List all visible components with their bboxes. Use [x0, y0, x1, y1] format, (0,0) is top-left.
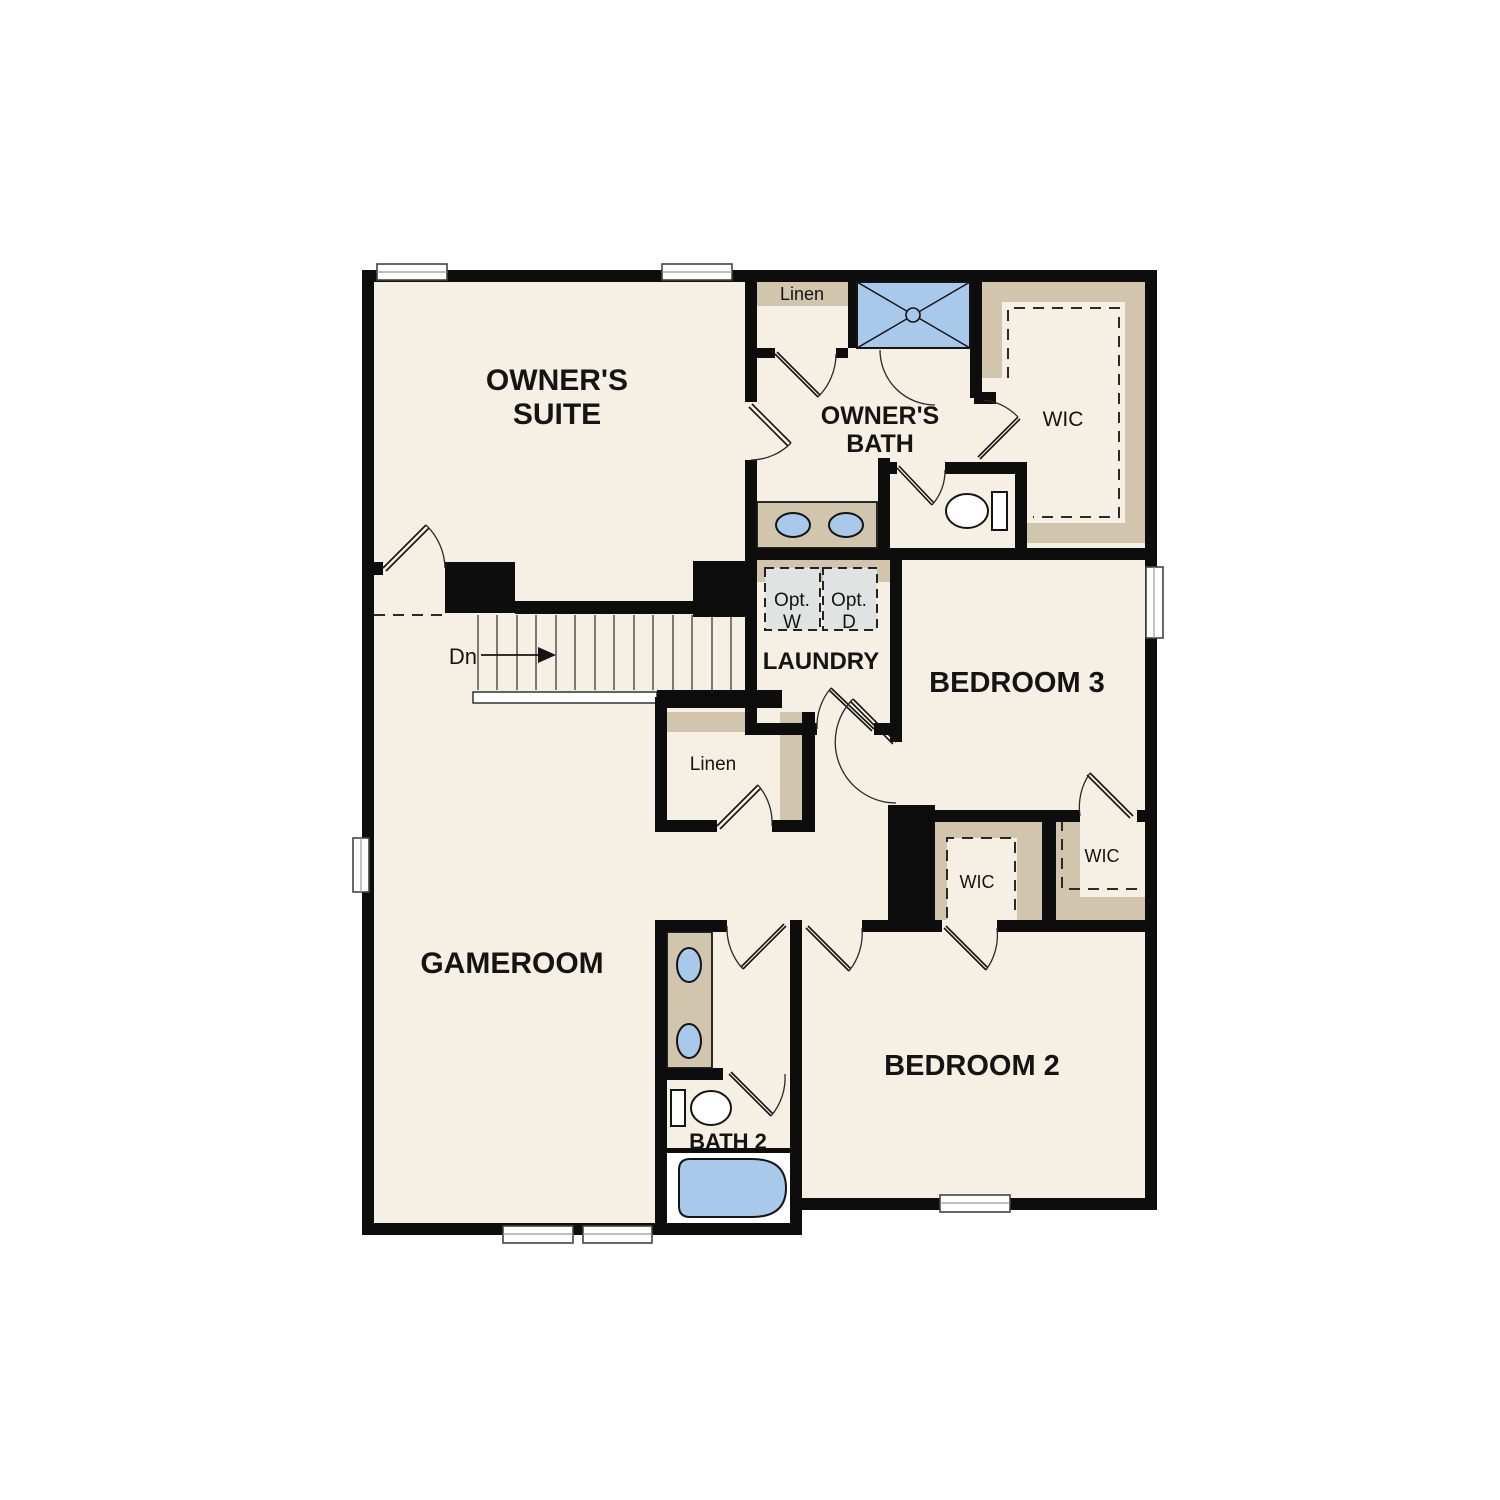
owners-wic-shelf-left	[982, 302, 1002, 378]
wall-exterior-top	[362, 270, 1157, 282]
wall-midlinen-left	[655, 697, 667, 832]
wall-suite-block-right	[693, 561, 745, 617]
window-bedroom2-bottom	[940, 1195, 1010, 1212]
optional-dryer-label-line2: D	[842, 612, 856, 633]
owners-wic-shelf-bottom	[1027, 523, 1145, 543]
shower-drain	[906, 308, 920, 322]
wall-bedroom3-top	[745, 548, 1145, 560]
owners-bath-label-line1: OWNER'S	[821, 402, 939, 430]
wall-toilet-right	[1015, 462, 1027, 548]
stair-direction-label: Dn	[449, 644, 477, 669]
wic-bedroom2-label: WIC	[960, 872, 995, 892]
stair-landing	[473, 692, 657, 703]
bath2-tub	[667, 1153, 790, 1223]
wic-bedroom2-shelf-left	[935, 822, 947, 920]
window-gameroom-left	[353, 838, 369, 892]
wall-toilet-top-left	[878, 462, 897, 474]
owners-suite-label-line2: SUITE	[513, 398, 601, 431]
owners-wic-shelf-top	[982, 282, 1145, 302]
bath2-sink-bottom	[677, 1024, 701, 1058]
wall-column-hall	[888, 805, 935, 922]
wall-stair-top	[515, 601, 697, 614]
owners-bath-label-line2: BATH	[846, 430, 914, 458]
wall-toilet-top-right	[945, 462, 1027, 474]
wall-shower-right	[970, 282, 982, 398]
bath2-sink-top	[677, 948, 701, 982]
wall-bedroom3-bottom-stub	[1137, 810, 1145, 822]
wall-suite-bath-upper	[745, 282, 757, 402]
owners-sink-right	[829, 513, 863, 537]
floor-plan-drawing: Dn Opt. W Opt. D	[0, 0, 1500, 1500]
optional-washer-label-line1: Opt.	[774, 590, 810, 611]
wic-right-label: WIC	[1085, 846, 1120, 866]
bedroom2-label: BEDROOM 2	[884, 1050, 1060, 1082]
wall-exterior-left	[362, 270, 374, 1235]
bath2-toilet-tank	[671, 1090, 685, 1126]
optional-dryer-label-line1: Opt.	[831, 590, 867, 611]
wic-right-shelf-bottom	[1056, 897, 1145, 920]
wall-bath2-bedroom2	[790, 920, 802, 1235]
wall-wic-divider	[1042, 816, 1056, 922]
wic-bedroom2-shelf-right	[1017, 822, 1042, 920]
wall-exterior-right	[1145, 270, 1157, 1210]
linen-top-label: Linen	[780, 284, 824, 304]
bathtub	[679, 1159, 786, 1217]
owners-suite-label-line1: OWNER'S	[486, 364, 628, 397]
wall-laundry-bottom-left	[745, 723, 817, 735]
wall-bath2-mid	[667, 1068, 723, 1080]
owners-toilet	[946, 492, 1007, 530]
wall-linen-stub-right	[836, 348, 848, 358]
linen-mid-label: Linen	[690, 754, 737, 775]
bath2-toilet	[671, 1090, 731, 1126]
owners-toilet-tank	[992, 492, 1007, 530]
laundry-label: LAUNDRY	[763, 648, 879, 675]
bath2-vanity	[667, 932, 712, 1068]
wall-bedroom3-left	[890, 560, 902, 742]
owners-wic-label: WIC	[1043, 408, 1084, 431]
wall-bath2-left	[655, 920, 667, 1223]
window-suite-top-left	[377, 264, 447, 280]
wall-suite-block-left	[445, 562, 515, 613]
bath2-toilet-bowl	[691, 1091, 731, 1125]
wall-midlinen-top	[655, 697, 757, 706]
bath2-label: BATH 2	[689, 1129, 767, 1154]
bedroom3-label: BEDROOM 3	[929, 667, 1105, 699]
gameroom-label: GAMEROOM	[420, 947, 603, 980]
owners-vanity	[757, 502, 877, 548]
wall-bedroom2-top-right	[997, 920, 1145, 932]
owners-wic-shelf-right	[1125, 302, 1145, 523]
wall-suite-bath-lower	[745, 460, 757, 723]
window-suite-top-right	[662, 264, 732, 280]
shower	[857, 282, 970, 348]
window-gameroom-bottom-2	[583, 1226, 652, 1243]
wall-bedroom2-top-left	[862, 920, 942, 932]
wall-exterior-bottom-left	[362, 1223, 802, 1235]
mid-linen-shelf	[667, 712, 745, 732]
optional-washer-label-line2: W	[783, 612, 801, 633]
wall-midlinen-bottom-left	[655, 820, 717, 832]
window-gameroom-bottom-1	[503, 1226, 573, 1243]
owners-sink-left	[776, 513, 810, 537]
owners-toilet-bowl	[946, 494, 988, 528]
wall-suite-door-stub	[374, 562, 383, 575]
wall-linen-stub-left	[757, 348, 775, 358]
floor-plan-page: Dn Opt. W Opt. D	[0, 0, 1500, 1500]
window-bedroom3-right	[1146, 567, 1163, 638]
